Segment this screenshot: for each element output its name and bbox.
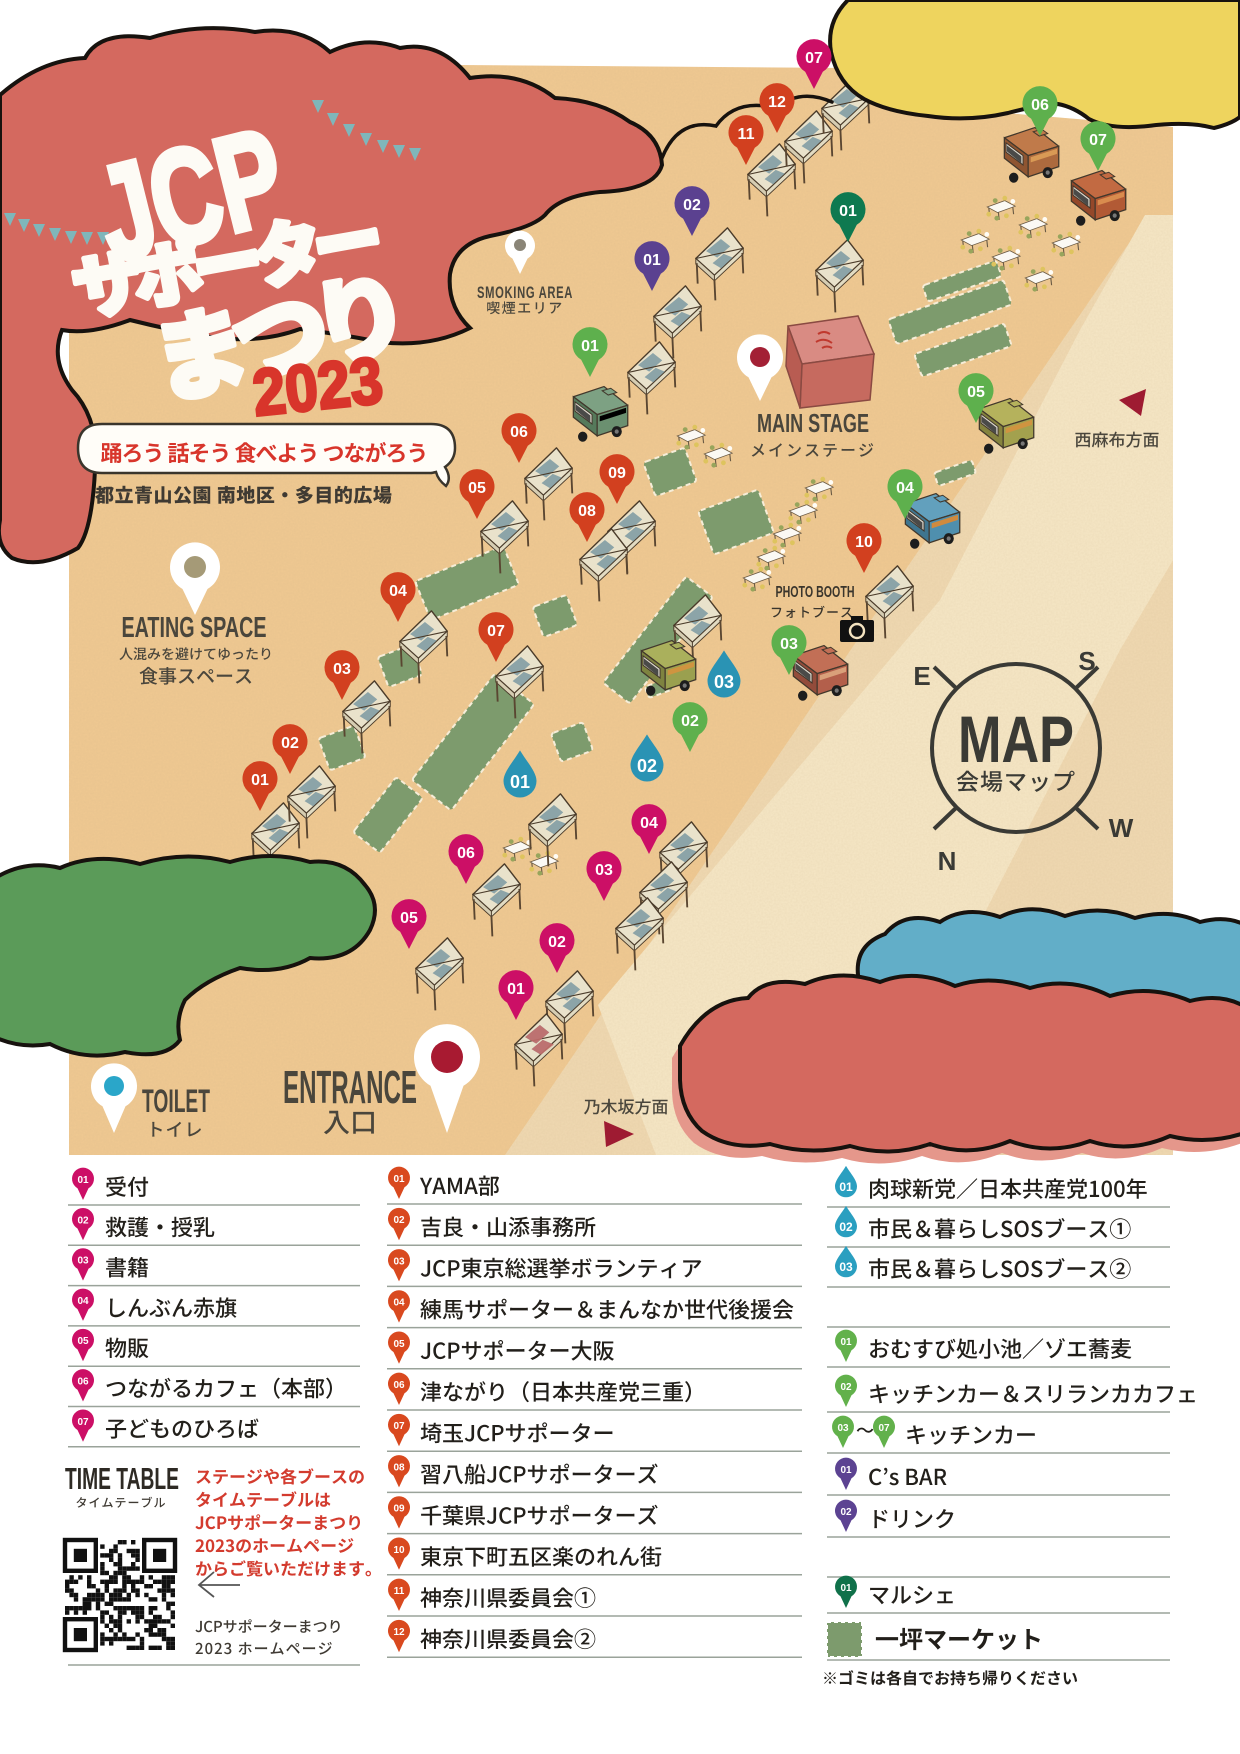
svg-text:01: 01 [251,772,269,789]
svg-text:ENTRANCE: ENTRANCE [283,1061,417,1113]
svg-text:01: 01 [77,1175,89,1186]
svg-text:02: 02 [840,1382,852,1393]
svg-text:05: 05 [77,1336,89,1347]
svg-text:N: N [938,846,957,876]
svg-text:01: 01 [643,252,661,269]
svg-text:01: 01 [839,1180,853,1194]
svg-text:02: 02 [840,1507,852,1518]
svg-text:04: 04 [640,815,658,832]
svg-text:06: 06 [457,845,475,862]
svg-text:03: 03 [837,1423,849,1434]
svg-text:03: 03 [595,862,613,879]
svg-text:11: 11 [394,1586,405,1597]
svg-text:01: 01 [839,203,857,220]
svg-text:09: 09 [608,465,626,482]
svg-text:03: 03 [333,661,351,678]
svg-text:04: 04 [389,583,407,600]
svg-text:TIME TABLE: TIME TABLE [65,1461,179,1496]
svg-text:07: 07 [878,1423,890,1434]
svg-text:07: 07 [805,50,823,67]
svg-text:MAP: MAP [958,702,1074,776]
svg-text:12: 12 [768,94,786,111]
svg-text:05: 05 [967,384,985,401]
svg-text:03: 03 [77,1256,89,1267]
svg-text:03: 03 [780,636,798,653]
svg-text:MAIN STAGE: MAIN STAGE [757,408,869,438]
svg-text:05: 05 [468,480,486,497]
svg-text:02: 02 [548,934,566,951]
svg-text:02: 02 [681,713,699,730]
svg-text:02: 02 [637,756,657,776]
svg-text:08: 08 [393,1462,405,1473]
svg-text:06: 06 [510,424,528,441]
svg-text:04: 04 [77,1296,89,1307]
svg-text:SMOKING AREA: SMOKING AREA [477,283,573,302]
svg-text:02: 02 [683,197,701,214]
svg-text:03: 03 [714,672,734,692]
svg-text:07: 07 [393,1421,405,1432]
svg-text:08: 08 [578,503,596,520]
svg-text:07: 07 [487,623,505,640]
svg-text:02: 02 [281,735,299,752]
svg-text:04: 04 [393,1298,405,1309]
svg-text:01: 01 [840,1337,852,1348]
svg-text:05: 05 [393,1339,405,1350]
svg-text:2023: 2023 [249,343,386,430]
svg-text:02: 02 [839,1220,853,1234]
svg-text:W: W [1109,813,1134,843]
svg-text:06: 06 [393,1380,405,1391]
svg-text:06: 06 [1031,97,1049,114]
svg-text:01: 01 [507,981,525,998]
svg-text:02: 02 [393,1215,405,1226]
svg-text:S: S [1078,646,1095,676]
svg-text:01: 01 [840,1583,852,1594]
svg-text:TOILET: TOILET [142,1083,210,1119]
svg-text:01: 01 [510,772,530,792]
svg-text:07: 07 [77,1417,89,1428]
svg-text:05: 05 [400,910,418,927]
svg-text:02: 02 [77,1215,89,1226]
svg-text:01: 01 [581,338,599,355]
svg-text:11: 11 [738,126,755,143]
svg-text:10: 10 [393,1545,405,1556]
svg-text:EATING SPACE: EATING SPACE [122,612,267,644]
svg-text:01: 01 [840,1465,852,1476]
svg-text:01: 01 [393,1174,405,1185]
svg-text:07: 07 [1089,132,1107,149]
svg-text:12: 12 [393,1627,405,1638]
svg-text:09: 09 [393,1504,405,1515]
svg-text:10: 10 [855,534,873,551]
svg-text:06: 06 [77,1377,89,1388]
svg-text:03: 03 [393,1256,405,1267]
svg-text:03: 03 [839,1260,853,1274]
svg-text:E: E [913,661,930,691]
svg-text:04: 04 [896,480,914,497]
svg-text:PHOTO BOOTH: PHOTO BOOTH [776,584,855,601]
